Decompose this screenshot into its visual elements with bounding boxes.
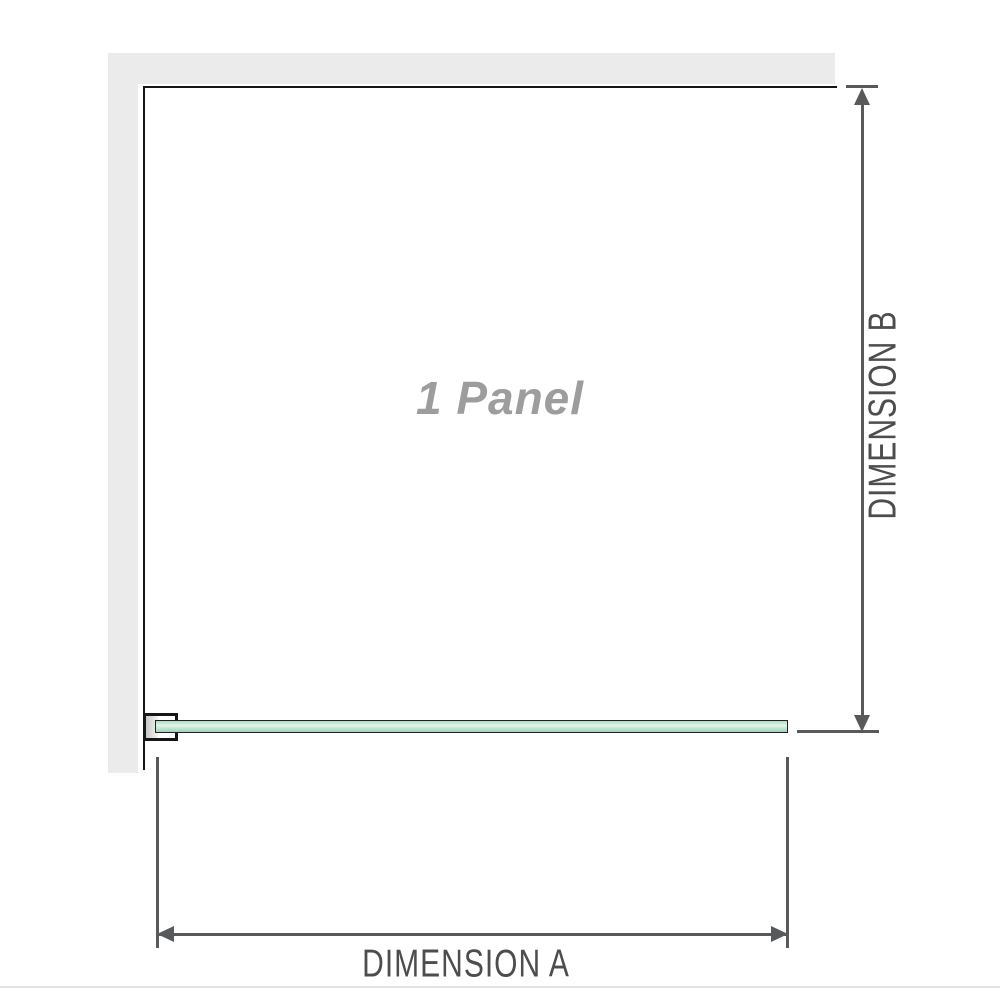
enclosure-outline-top <box>143 86 837 88</box>
dimension-a-tick-left <box>156 757 159 948</box>
dimension-b-label: DIMENSION B <box>862 310 906 519</box>
wall-left <box>108 53 138 773</box>
arrow-left-icon <box>157 926 174 942</box>
dimension-a-label: DIMENSION A <box>362 943 570 987</box>
bottom-divider <box>0 986 1000 988</box>
shower-panel-diagram: 1 Panel DIMENSION B DIMENSION A <box>0 0 1000 1000</box>
dimension-a-line <box>158 933 788 936</box>
arrow-right-icon <box>771 926 788 942</box>
glass-panel <box>155 720 788 733</box>
panel-watermark-label: 1 Panel <box>416 371 584 425</box>
dimension-a-tick-right <box>786 757 789 948</box>
wall-top <box>108 53 835 84</box>
enclosure-outline-left <box>143 86 145 770</box>
arrow-up-icon <box>854 88 870 105</box>
arrow-down-icon <box>854 715 870 732</box>
